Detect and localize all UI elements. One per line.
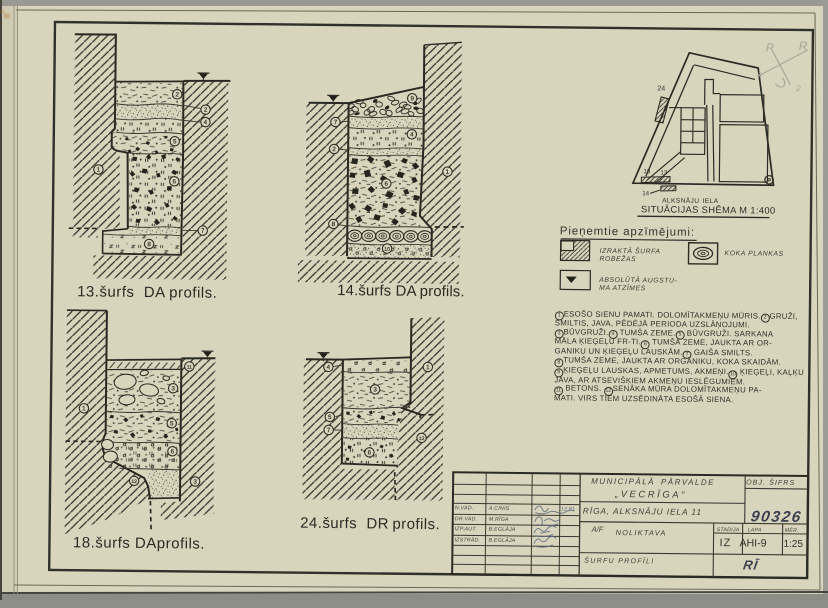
svg-text:3: 3 <box>373 387 377 394</box>
svg-text:5: 5 <box>170 420 174 427</box>
svg-text:10: 10 <box>384 247 390 253</box>
svg-text:5: 5 <box>328 414 332 421</box>
svg-text:6: 6 <box>171 448 175 455</box>
svg-text:4: 4 <box>327 364 331 371</box>
svg-text:7: 7 <box>201 228 205 235</box>
svg-text:9: 9 <box>410 95 414 102</box>
svg-text:12: 12 <box>131 479 137 485</box>
svg-text:6: 6 <box>173 178 177 185</box>
svg-text:8: 8 <box>332 221 336 228</box>
svg-text:7: 7 <box>327 427 331 434</box>
svg-text:1: 1 <box>97 167 101 174</box>
svg-text:3: 3 <box>171 385 175 392</box>
svg-text:2: 2 <box>332 146 336 153</box>
svg-text:3: 3 <box>193 479 197 486</box>
svg-text:12: 12 <box>419 436 425 442</box>
svg-text:5: 5 <box>173 138 177 145</box>
svg-text:7: 7 <box>334 119 338 126</box>
svg-text:6: 6 <box>385 181 389 188</box>
svg-text:8: 8 <box>147 241 151 248</box>
svg-text:4: 4 <box>204 119 208 126</box>
svg-text:11: 11 <box>187 365 192 371</box>
svg-text:4: 4 <box>410 131 414 138</box>
svg-text:2: 2 <box>175 91 179 98</box>
svg-text:2: 2 <box>204 107 208 114</box>
svg-text:6: 6 <box>368 449 372 456</box>
svg-text:1: 1 <box>426 364 430 371</box>
svg-text:1: 1 <box>82 405 86 412</box>
svg-text:1: 1 <box>446 169 450 176</box>
